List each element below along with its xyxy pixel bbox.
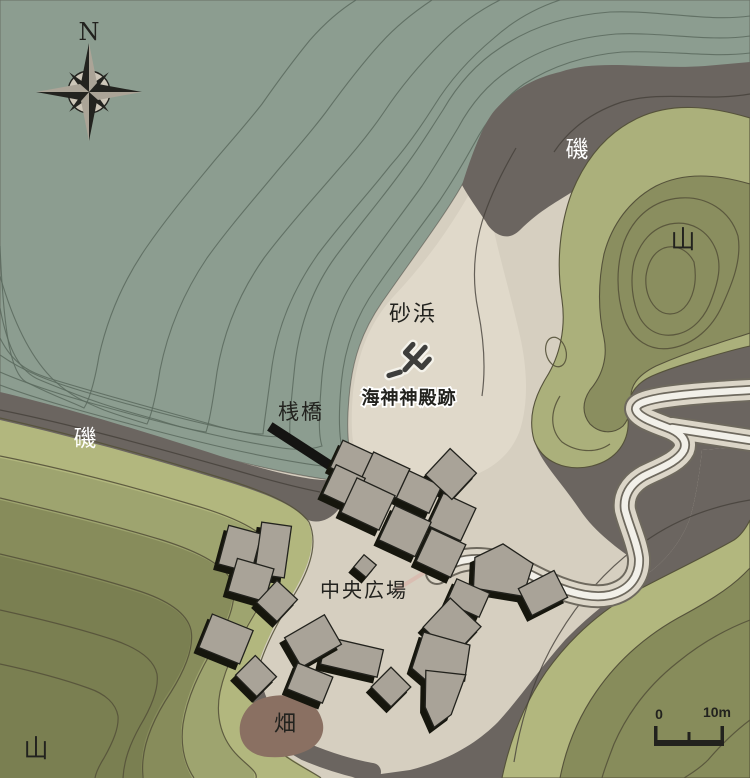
scale-start-label: 0 xyxy=(655,706,663,722)
sandy-beach-label: 砂浜 xyxy=(389,301,437,326)
central-plaza-label: 中央広場 xyxy=(320,579,408,602)
scale-end-label: 10m xyxy=(703,704,731,720)
map-canvas: N 0 10m 磯 山 砂浜 海神神殿跡 桟橋 磯 中央広場 畑 山 xyxy=(0,0,750,778)
rocky-shore-label-top: 磯 xyxy=(566,136,591,162)
pier-label: 桟橋 xyxy=(278,401,324,424)
compass-north-label: N xyxy=(79,18,100,46)
field-label: 畑 xyxy=(274,711,298,736)
mountain-label-bottom-left: 山 xyxy=(23,735,50,763)
sea-temple-ruins-label: 海神神殿跡 xyxy=(362,387,457,409)
rocky-shore-label-left: 磯 xyxy=(74,425,99,451)
mountain-label-right: 山 xyxy=(670,226,697,254)
village-map: N 0 10m 磯 山 砂浜 海神神殿跡 桟橋 磯 中央広場 畑 山 xyxy=(0,0,750,778)
